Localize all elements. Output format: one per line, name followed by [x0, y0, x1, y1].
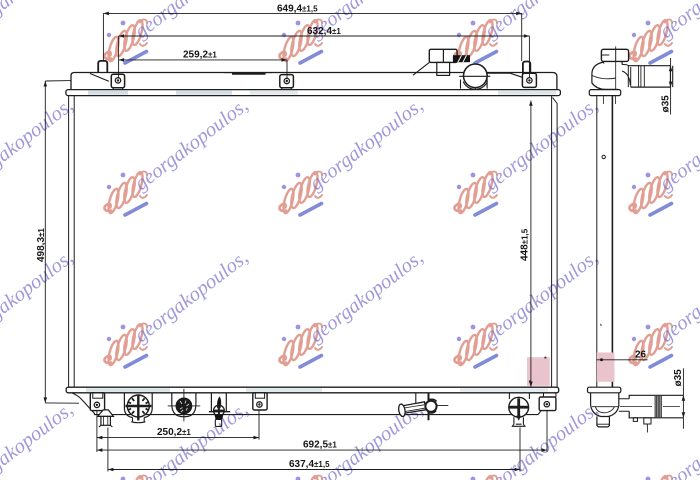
- svg-text:649,4±1,5: 649,4±1,5: [277, 4, 318, 15]
- svg-text:692,5±1: 692,5±1: [303, 439, 337, 450]
- svg-text:250,2±1: 250,2±1: [157, 427, 191, 438]
- svg-text:498,3±1: 498,3±1: [36, 228, 47, 262]
- svg-text:ø35: ø35: [661, 95, 672, 113]
- svg-text:632,4±1: 632,4±1: [307, 26, 341, 37]
- svg-text:259,2±1: 259,2±1: [183, 50, 217, 61]
- svg-text:637,4±1,5: 637,4±1,5: [289, 459, 330, 470]
- svg-text:ø35: ø35: [673, 369, 684, 387]
- svg-text:26: 26: [635, 349, 647, 360]
- svg-text:448±1,5: 448±1,5: [520, 228, 531, 261]
